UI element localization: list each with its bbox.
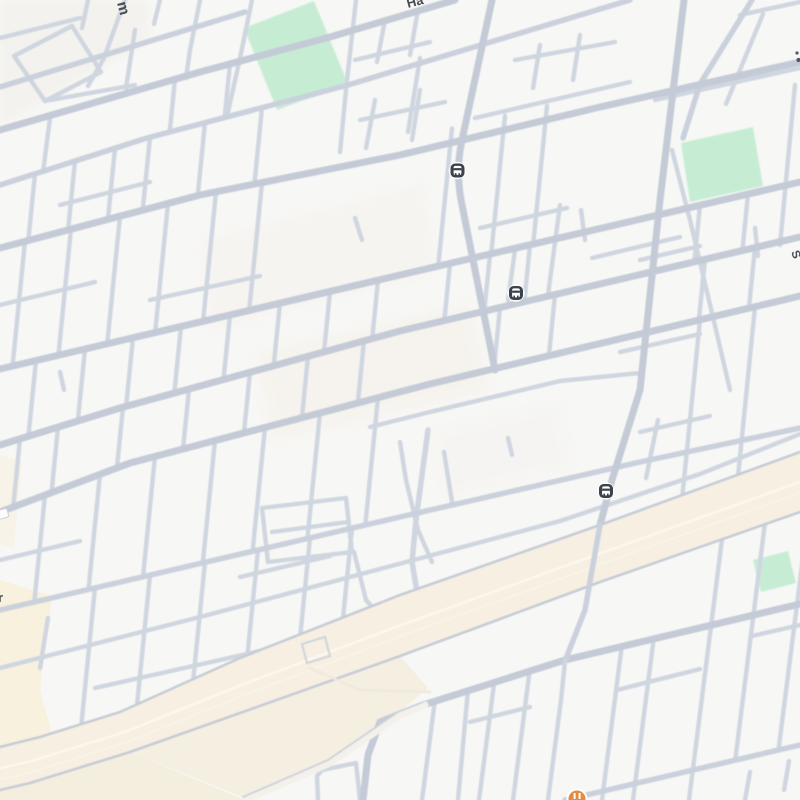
svg-text:r: r — [0, 590, 3, 605]
